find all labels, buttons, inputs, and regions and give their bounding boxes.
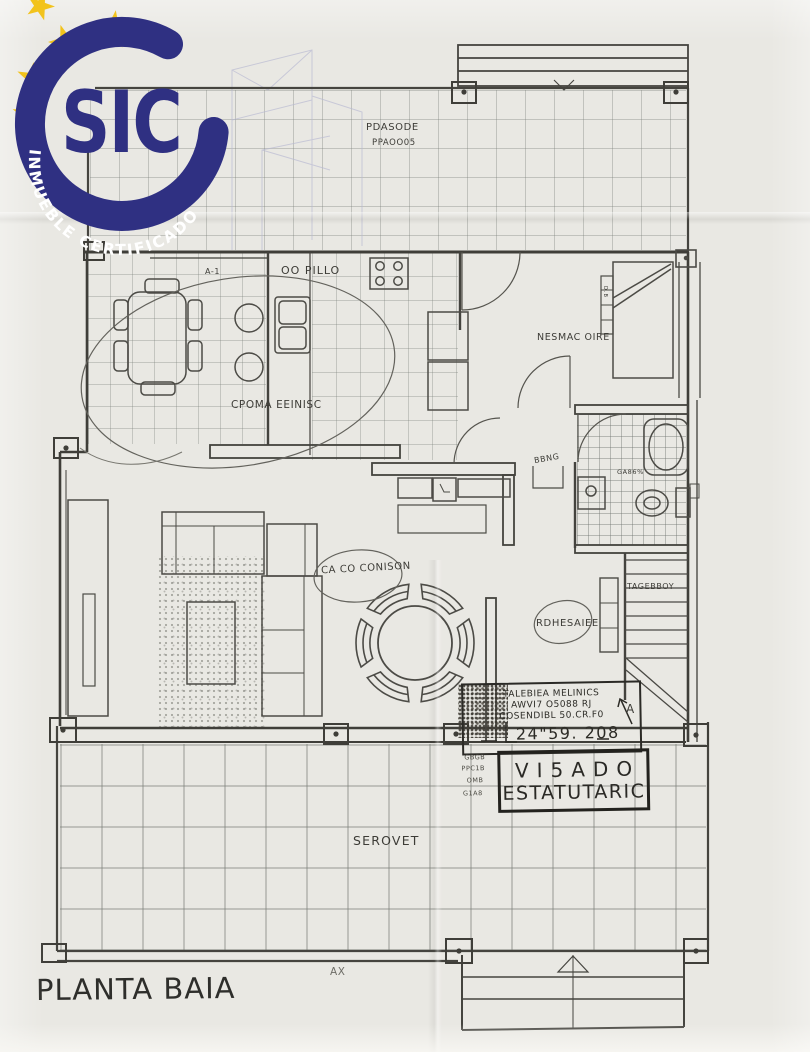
upper-terrace-sublabel: PPAOO05	[372, 138, 416, 148]
sheet-mark-ax: AX	[330, 966, 346, 978]
round-table-set	[356, 580, 474, 706]
door-swings	[454, 252, 626, 464]
bedroom-furniture	[601, 250, 696, 378]
plan-title: PLANTA BAIA	[36, 971, 236, 1007]
terrace-dining-set	[114, 279, 202, 395]
bathtub	[644, 419, 688, 475]
cabinet	[428, 362, 468, 410]
house-walls	[60, 252, 700, 742]
armchair	[267, 524, 317, 576]
interior-walls	[210, 252, 688, 742]
bedroom-label: NESMAC OIRE	[537, 332, 610, 343]
star-icon	[22, 0, 58, 22]
upper-stairs	[458, 45, 688, 90]
hall-note-label: RDHESAIEE	[536, 618, 599, 629]
hand-annotations	[67, 254, 595, 648]
sic-logo: SIC INMUEBLE CERTIFICADO	[0, 0, 262, 262]
bar-stool	[235, 304, 263, 332]
fridge	[428, 312, 468, 360]
toilet	[636, 490, 668, 516]
stamp-marks	[481, 699, 632, 742]
coffee-table	[187, 602, 235, 684]
arrow-a-label: A	[626, 702, 635, 716]
living-room-furniture	[68, 500, 322, 716]
bar-stool	[235, 353, 263, 381]
scanned-floor-plan-page: PDASODE PPAOO05 OO PILLO A-1 NESMAC OIRE…	[0, 0, 810, 1052]
kitchen-note-label: CPOMA EEINISC	[231, 399, 322, 411]
lower-terrace-label: SEROVET	[353, 833, 420, 848]
logo-brand-text: SIC	[61, 74, 181, 173]
lower-stairs	[461, 955, 685, 1030]
kitchen-fixtures	[235, 258, 510, 533]
bed	[613, 262, 673, 378]
wash-basin	[578, 477, 605, 509]
stairs-label: TAGEBBOY	[627, 582, 674, 591]
sideboard	[68, 500, 108, 716]
sofa	[262, 576, 322, 716]
bed-note-label: D.B	[602, 286, 608, 298]
stove	[370, 258, 408, 289]
grid-mark-a1: A-1	[205, 267, 220, 276]
upper-terrace-label: PDASODE	[366, 122, 419, 133]
kitchen-label: OO PILLO	[281, 264, 340, 277]
bathroom-label: GA86%	[617, 468, 644, 476]
kitchen-sink	[275, 297, 310, 353]
sofa	[162, 512, 264, 574]
